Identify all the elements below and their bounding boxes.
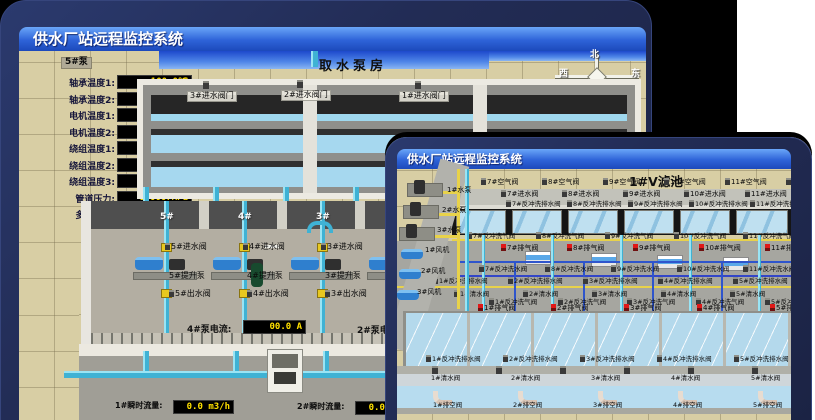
empty-valve-label[interactable]: 2#排空阀: [513, 402, 542, 409]
outlet-stub-pipe: [233, 351, 239, 373]
flow2-label: 2#瞬时流量:: [297, 403, 344, 412]
front-card: 供水厂站远程监控系统 1#V滤池 7#空气阀8#空气阀9#空气阀10#空气阀11…: [385, 137, 812, 420]
flow1-readout: 0.0 m3/h: [173, 400, 234, 414]
empty-valve-label[interactable]: 5#排空阀: [753, 402, 782, 409]
empty-valve-row: 1#排空阀2#排空阀3#排空阀4#排空阀5#排空阀6#排空阀: [397, 169, 791, 420]
outlet-valve-label[interactable]: 4#出水阀: [247, 290, 289, 299]
front-window: 供水厂站远程监控系统 1#V滤池 7#空气阀8#空气阀9#空气阀10#空气阀11…: [397, 149, 791, 420]
empty-valve-label[interactable]: 1#排空阀: [433, 402, 462, 409]
outlet-valve-label[interactable]: 3#出水阀: [325, 290, 367, 299]
pump4-current-readout: 00.0 A: [243, 320, 306, 334]
filter-pool-scene: 1#V滤池 7#空气阀8#空气阀9#空气阀10#空气阀11#空气阀12#空气阀 …: [397, 169, 791, 420]
back-window-titlebar: 供水厂站远程监控系统: [19, 27, 646, 51]
pump4-current-label: 4#泵电流:: [187, 322, 231, 335]
empty-valve-label[interactable]: 3#排空阀: [593, 402, 622, 409]
ground: [19, 289, 79, 420]
flow1-label: 1#瞬时流量:: [115, 402, 162, 411]
outlet-stub-pipe: [143, 351, 149, 373]
flow-meter: [267, 349, 303, 393]
outlet-stub-pipe: [323, 351, 329, 373]
empty-valve-label[interactable]: 4#排空阀: [673, 402, 702, 409]
desktop: 供水厂站远程监控系统 取水泵房 北 西 南 东: [0, 0, 815, 420]
outlet-valve-label[interactable]: 5#出水阀: [169, 290, 211, 299]
